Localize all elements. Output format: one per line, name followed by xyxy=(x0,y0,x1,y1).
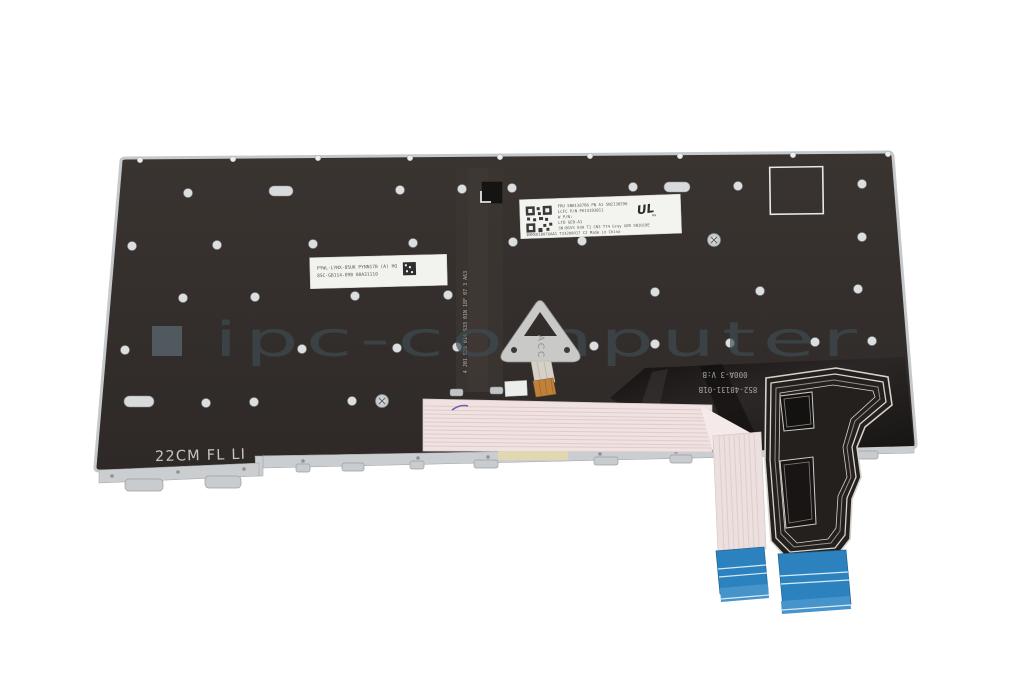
mount-tab xyxy=(670,455,692,463)
ul-mark-suffix: us xyxy=(652,213,656,217)
mount-tab xyxy=(342,463,364,471)
backlight-ribbon-cable xyxy=(765,368,892,614)
bracket-hole xyxy=(511,347,517,353)
keyboard-cable-connector xyxy=(716,547,769,602)
clamp-stud xyxy=(450,389,463,396)
plate-size-marking: 22CM FL LI xyxy=(155,447,246,465)
mount-tab xyxy=(410,461,424,469)
screw-boss xyxy=(708,234,721,247)
clamp-stud xyxy=(490,387,503,394)
mount-tab xyxy=(594,457,618,465)
black-tape-patch xyxy=(482,182,502,203)
bracket-hole xyxy=(564,347,570,353)
backlight-cable-connector xyxy=(778,550,851,614)
top-spec-label: FRU 5N0138766 PN A1 5N2138296 LCFC P/N P… xyxy=(519,194,681,239)
mount-foot xyxy=(125,479,163,491)
keyboard-ribbon-cable xyxy=(423,399,769,602)
screw-boss xyxy=(376,395,389,408)
mount-tab xyxy=(858,451,878,459)
flex-print-line2: 852-48131-01B xyxy=(698,385,757,394)
mount-tab xyxy=(296,464,310,472)
flex-print-line1: 000A-3 V:B xyxy=(702,370,748,379)
watermark-square-icon xyxy=(152,326,182,356)
bracket-stamp-text: ACC xyxy=(535,335,545,360)
keyboard-backplate-photo: FRU 5N0138766 PN A1 5N2138296 LCFC P/N P… xyxy=(0,0,1024,680)
mount-foot xyxy=(205,476,241,488)
mount-tab xyxy=(474,460,498,468)
side-spec-label: PYWL-LYNX-85UK PYNN17B (A) HQ 8SC-GB114-… xyxy=(310,254,448,289)
product-photo: FRU 5N0138766 PN A1 5N2138296 LCFC P/N P… xyxy=(0,0,1024,680)
adhesive-pad xyxy=(498,451,568,460)
white-pad xyxy=(505,380,528,396)
datamatrix-code xyxy=(403,262,416,275)
